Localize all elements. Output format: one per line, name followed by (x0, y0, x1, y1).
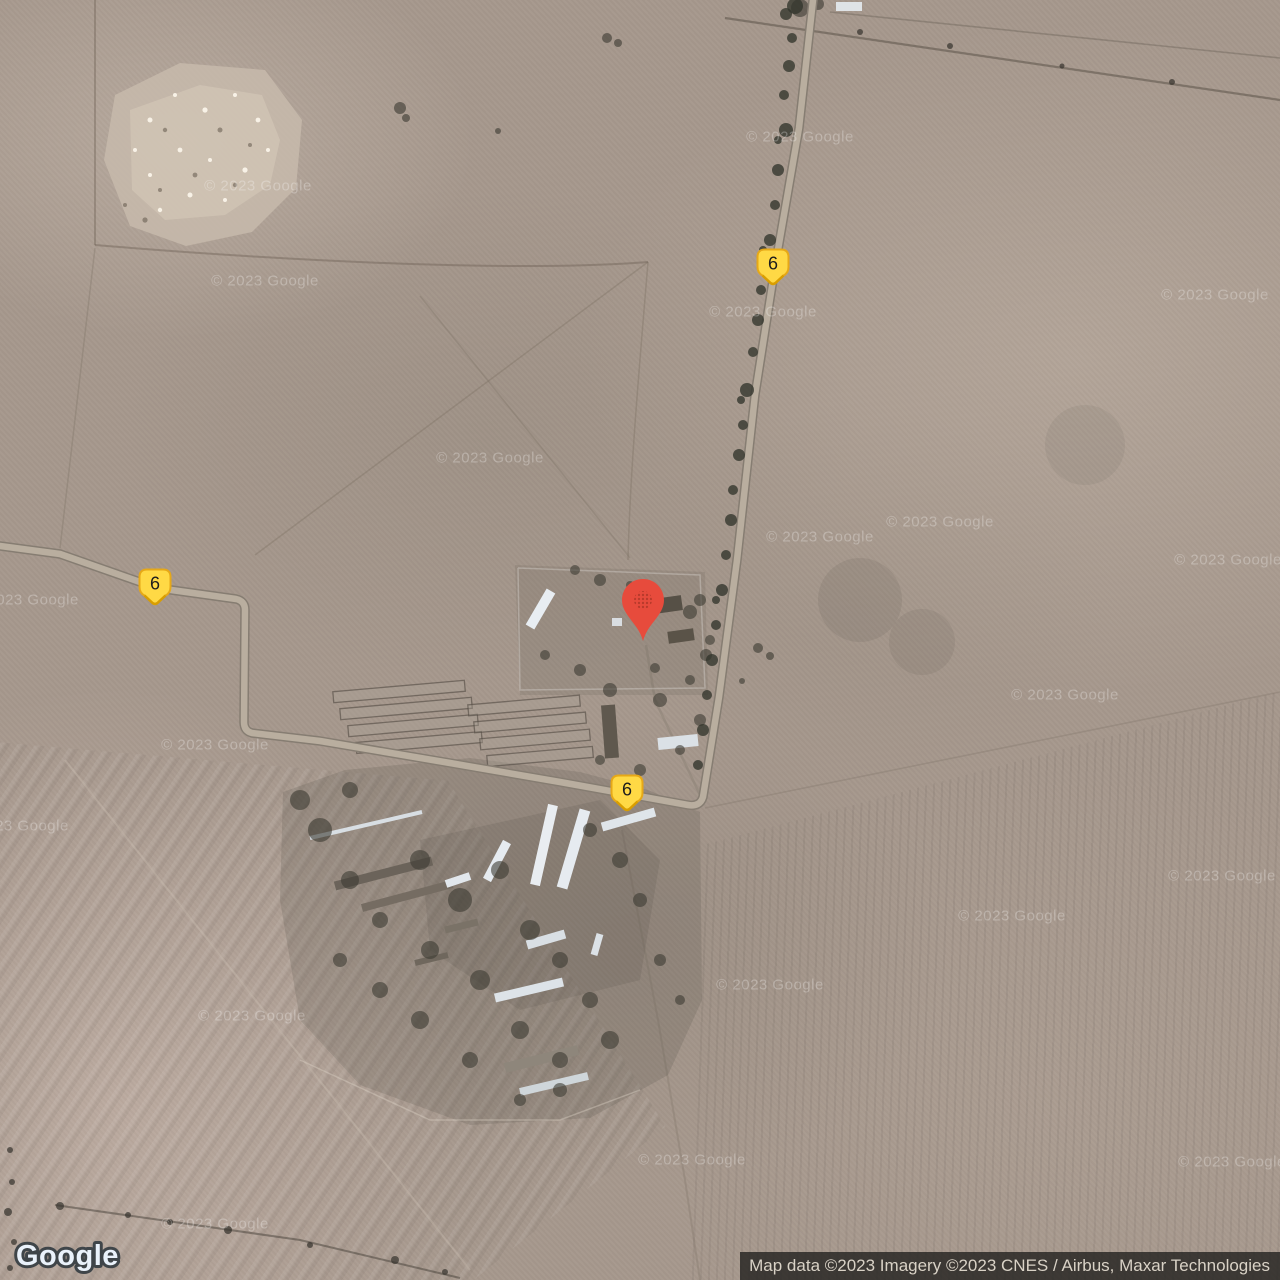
google-watermark: © 2023 Google (886, 514, 994, 531)
attribution-bar: Map data ©2023 Imagery ©2023 CNES / Airb… (740, 1252, 1280, 1280)
route-6-shield: 6 (610, 774, 644, 812)
farm-trees (290, 565, 715, 1106)
google-watermark: © 2023 Google (161, 737, 269, 754)
google-watermark: © 2023 Google (1011, 687, 1119, 704)
quarry-area (104, 63, 302, 246)
greenhouse-rows (333, 680, 594, 766)
google-watermark: © 2023 Google (0, 818, 69, 835)
google-watermark: © 2023 Google (709, 304, 817, 321)
google-watermark: © 2023 Google (716, 977, 824, 994)
google-watermark: © 2023 Google (0, 592, 79, 609)
google-watermark: © 2023 Google (1174, 552, 1280, 569)
google-watermark: © 2023 Google (198, 1008, 306, 1025)
google-logo[interactable]: Google (10, 1234, 150, 1280)
roadside-tree-line (693, 0, 803, 770)
route-6-shield: 6 (756, 248, 790, 286)
route-shield-label: 6 (150, 574, 160, 594)
farm-buildings (310, 2, 862, 1092)
google-watermark: © 2023 Google (746, 129, 854, 146)
google-watermark: © 2023 Google (1161, 287, 1269, 304)
google-watermark: © 2023 Google (766, 529, 874, 546)
google-watermark: © 2023 Google (161, 1216, 269, 1233)
google-watermark: © 2023 Google (1168, 868, 1276, 885)
google-watermark: © 2023 Google (958, 908, 1066, 925)
location-pin[interactable] (617, 577, 669, 645)
farm-ground (280, 565, 708, 1125)
route-shield-label: 6 (622, 780, 632, 800)
google-watermark: © 2023 Google (204, 178, 312, 195)
road-route-6 (0, 0, 813, 805)
google-watermark: © 2023 Google (211, 273, 319, 290)
map-canvas[interactable]: © 2023 Google © 2023 Google © 2023 Googl… (0, 0, 1280, 1280)
google-watermark: © 2023 Google (436, 450, 544, 467)
google-watermark: © 2023 Google (1178, 1154, 1280, 1171)
attribution-text: Map data ©2023 Imagery ©2023 CNES / Airb… (749, 1256, 1270, 1275)
google-watermark: © 2023 Google (638, 1152, 746, 1169)
google-logo-text: Google (16, 1240, 119, 1272)
route-shield-label: 6 (768, 254, 778, 274)
route-6-shield: 6 (138, 568, 172, 606)
vegetation-spots (394, 0, 1125, 684)
